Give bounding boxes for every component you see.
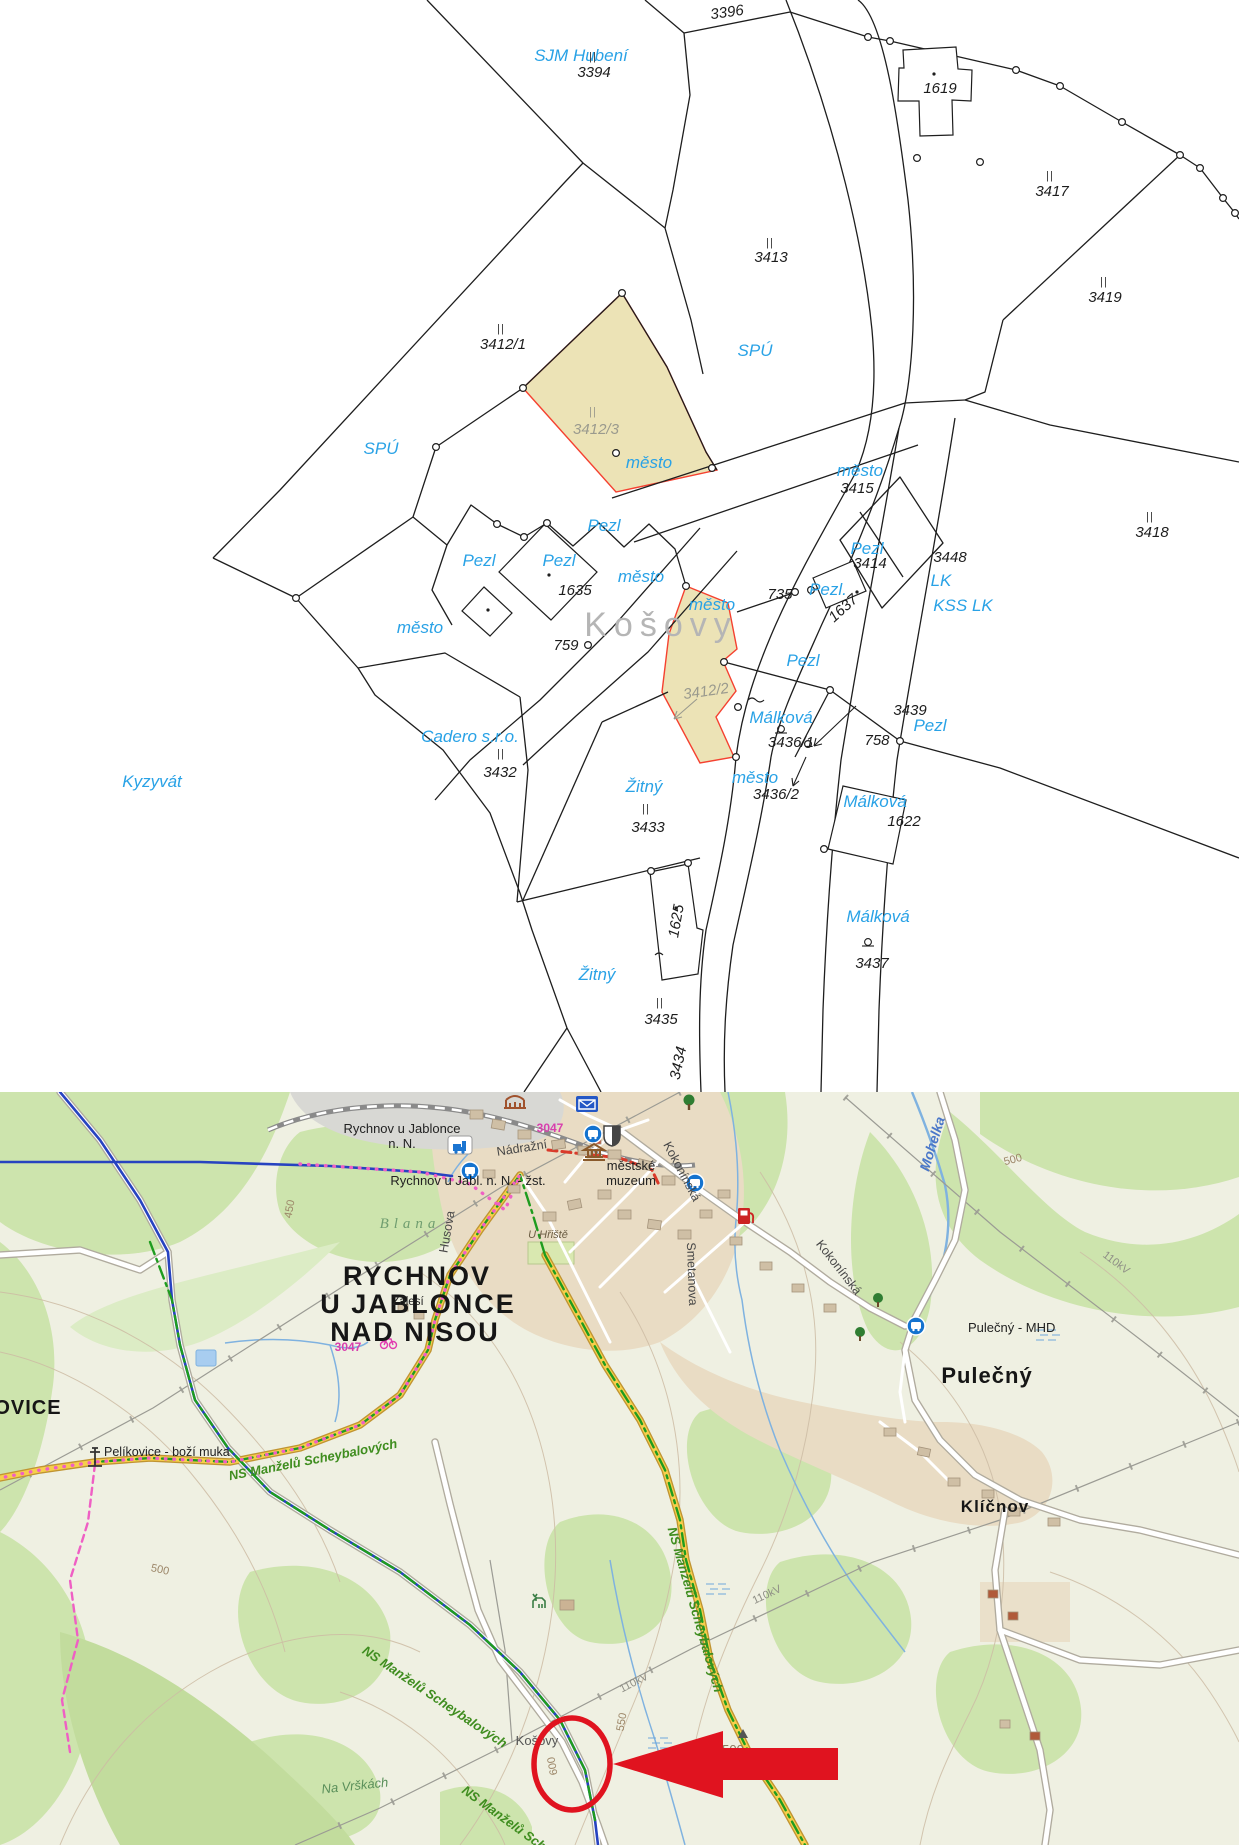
double-tick-mark: || [497, 323, 505, 335]
boundary-vertex-points [293, 34, 1239, 875]
double-tick-mark: || [1146, 511, 1154, 523]
owner-label: Pezl [542, 551, 576, 570]
double-tick-mark: || [766, 237, 774, 249]
owner-label: Žitný [625, 777, 664, 796]
street-label: Smetanova [684, 1242, 700, 1306]
highlighted-parcel-3412-3[interactable] [523, 293, 717, 492]
owner-label: Kyzyvát [122, 772, 183, 791]
place-label: U Hřiště [528, 1229, 568, 1241]
owner-label: Pezl [462, 551, 496, 570]
heraldic-shield-icon [604, 1126, 620, 1146]
bus-stop-icon [907, 1317, 925, 1335]
owner-label: Žitný [578, 965, 617, 984]
parcel-number: 1622 [887, 813, 921, 830]
map-screenshot: Košovy SJM Hubení SPÚ SPÚ město Pezl Pez… [0, 0, 1239, 1845]
double-tick-mark: || [1046, 170, 1054, 182]
parcel-number: 735 [767, 586, 793, 603]
cycle-route-badge: 3047 [537, 1121, 564, 1135]
owner-label: Málková [843, 792, 906, 811]
parcel-number: 3448 [933, 549, 967, 566]
parcel-number: 3396 [709, 2, 745, 24]
place-label: Rychnov u Jablonce [343, 1121, 460, 1136]
place-label: Pulečný - MHD [968, 1320, 1055, 1335]
parcel-number: 3412/1 [480, 336, 526, 353]
owner-label: SPÚ [738, 341, 774, 360]
owner-label: Málková [749, 708, 812, 727]
parcel-number-highlighted: 3412/3 [573, 421, 620, 438]
parcel-number: 3439 [893, 702, 927, 719]
owner-label: Pezl [587, 516, 621, 535]
owner-label: LK [931, 571, 952, 590]
village-name: Pulečný [941, 1363, 1032, 1388]
parcel-number: 3434 [667, 1045, 691, 1081]
owner-label: město [626, 453, 672, 472]
double-tick-mark: || [1100, 276, 1108, 288]
double-tick-mark: || [497, 748, 505, 760]
owner-label: město [397, 618, 443, 637]
parcel-number: 3436/1 [768, 734, 814, 751]
parcel-number: 3415 [840, 480, 874, 497]
owner-label: město [689, 595, 735, 614]
parcel-boundaries [213, 0, 1239, 1092]
parcel-number: 3418 [1135, 524, 1169, 541]
topographic-map-canvas[interactable]: RYCHNOV U JABLONCE NAD NISOU PELÍKOVICE … [0, 1092, 1239, 1845]
parcel-number: 3437 [855, 955, 889, 972]
post-office-icon [576, 1096, 598, 1112]
locality-label: Blana [380, 1216, 441, 1232]
owner-label: SPÚ [364, 439, 400, 458]
owner-label: město [618, 567, 664, 586]
double-tick-mark: || [589, 51, 597, 63]
parcel-number: 758 [864, 732, 890, 749]
owner-label: Cadero s.r.o. [421, 727, 519, 746]
parcel-number: 3433 [631, 819, 665, 836]
village-name: PELÍKOVICE [0, 1396, 62, 1419]
owner-label: KSS LK [933, 596, 993, 615]
parcel-number: 3435 [644, 1011, 678, 1028]
place-label: Rychnov u Jabl. n. N. - žst. [390, 1173, 545, 1188]
parcel-number: 1619 [923, 80, 957, 97]
place-label: Pelíkovice - boží muka [104, 1445, 230, 1459]
owner-label: město [732, 768, 778, 787]
place-label: muzeum [606, 1173, 656, 1188]
parcel-number: 3414 [853, 555, 886, 572]
parcel-number: 759 [553, 637, 579, 654]
parcel-number: 3419 [1088, 289, 1122, 306]
bus-stop-icon [584, 1125, 602, 1143]
owner-label: Pezl [786, 651, 820, 670]
double-tick-mark: || [589, 406, 597, 418]
train-station-icon [448, 1136, 472, 1154]
parcel-number: 3436/2 [753, 786, 800, 803]
place-label: n. N. [388, 1136, 415, 1151]
place-label: Zálesí [392, 1296, 424, 1308]
owner-label: SJM Hubení [534, 46, 630, 65]
owner-label: Pezl. [809, 580, 847, 599]
town-name-line: RYCHNOV [343, 1261, 491, 1291]
parcel-number: 3417 [1035, 183, 1069, 200]
place-label: městské [607, 1158, 655, 1173]
cycle-route-badge: 3047 [335, 1340, 362, 1354]
parcel-number: 1635 [558, 582, 592, 599]
cadastral-map-canvas[interactable]: Košovy SJM Hubení SPÚ SPÚ město Pezl Pez… [0, 0, 1239, 1092]
owner-label: Málková [846, 907, 909, 926]
double-tick-mark: || [656, 997, 664, 1009]
owner-label: město [837, 461, 883, 480]
parcel-number: 3394 [577, 64, 610, 81]
parcel-number: 3413 [754, 249, 788, 266]
village-name: Klíčnov [961, 1497, 1029, 1516]
double-tick-mark: || [642, 803, 650, 815]
parcel-number: 3432 [483, 764, 517, 781]
